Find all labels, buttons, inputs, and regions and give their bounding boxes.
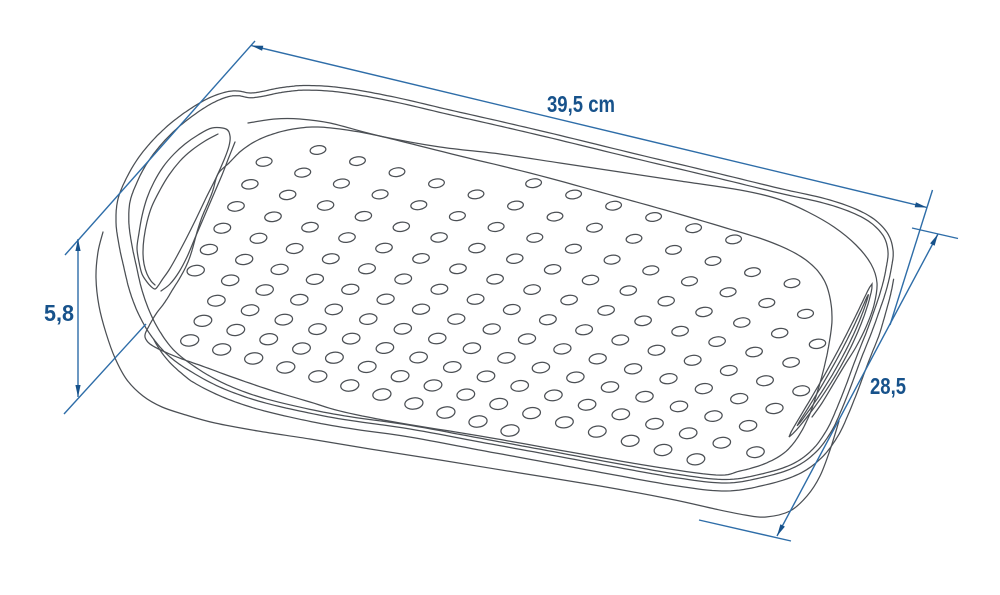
svg-text:5,8: 5,8: [44, 300, 74, 326]
svg-text:28,5: 28,5: [870, 373, 906, 399]
svg-text:39,5 cm: 39,5 cm: [547, 91, 615, 117]
